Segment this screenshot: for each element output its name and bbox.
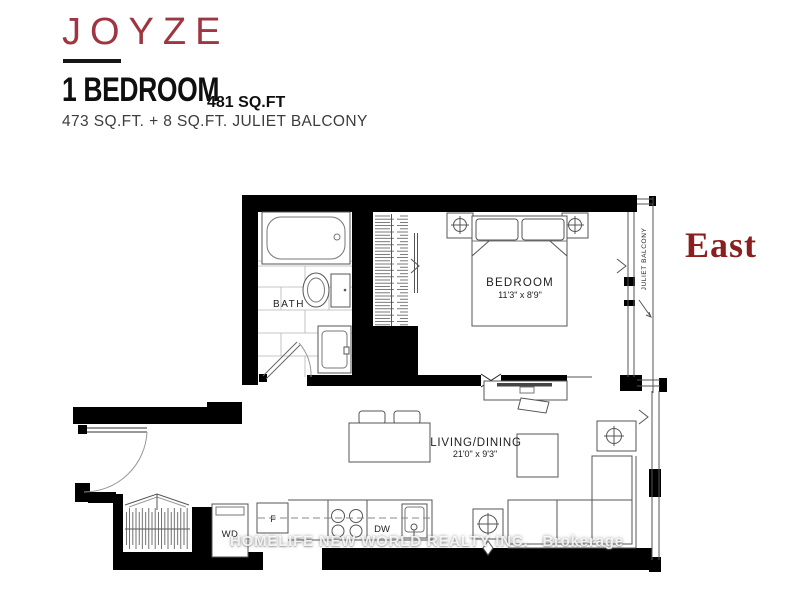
entry-door-hinge (78, 425, 87, 434)
tv-console (484, 381, 567, 413)
bedroom-room: BEDROOM 11'3" x 8'9" (447, 213, 588, 326)
wall-bath-west (242, 195, 258, 385)
window-mullion-bedroom-2 (624, 300, 635, 306)
living-dining-dimensions: 21'0" x 9'3" (453, 449, 497, 459)
bath-label: BATH (273, 299, 305, 310)
vanity-sink (318, 326, 351, 373)
dining-chair-left (359, 411, 385, 424)
bath-door-swing (263, 342, 311, 379)
watermark: HOMELIFE NEW WORLD REALTY INC.Brokerage (230, 533, 624, 550)
wall-west-jamb (75, 483, 90, 502)
wall-entry-north (73, 407, 230, 424)
entry-closet (125, 494, 190, 550)
bedroom-label: BEDROOM (486, 277, 554, 289)
wall-closet-block (373, 326, 418, 377)
bed (472, 216, 567, 326)
wall-balcony-bottom-block (620, 375, 642, 391)
watermark-realty: HOMELIFE NEW WORLD REALTY INC. (230, 533, 528, 550)
bedroom-closet (375, 214, 419, 326)
tv-icon (497, 383, 552, 387)
bathtub (262, 212, 350, 264)
bath-room: BATH (258, 212, 352, 379)
balcony-swing-arrow (639, 300, 651, 317)
coffee-table (517, 434, 558, 477)
wall-jamb-step (88, 492, 116, 503)
wall-bath-east (352, 195, 373, 378)
wall-entry-closet-right (192, 507, 212, 557)
window-chevron-bedroom (617, 259, 626, 273)
window-chevron-living (639, 410, 648, 424)
dining-table (349, 423, 430, 462)
toilet (303, 273, 350, 307)
entry-door-swing (84, 428, 147, 492)
floorplan-page: JOYZE 1 BEDROOM 481 SQ.FT 473 SQ.FT. + 8… (0, 0, 809, 600)
pillow-left (476, 219, 518, 240)
bedroom-dimensions: 11'3" x 8'9" (498, 290, 542, 300)
entry-closet-hangers (125, 505, 190, 550)
bath-door-hinge (259, 374, 267, 382)
living-dining-label: LIVING/DINING (430, 437, 522, 449)
watermark-suffix: Brokerage (542, 533, 623, 550)
floorplan-drawing: JULIET BALCONY (0, 0, 809, 600)
side-table (597, 421, 636, 451)
nightstand-left (447, 213, 473, 238)
wall-entry-step (207, 402, 242, 424)
fridge-label: F (270, 514, 276, 524)
wall-balcony-return-end (659, 378, 667, 392)
pillow-right (522, 219, 564, 240)
dining-chair-right (394, 411, 420, 424)
window-mullion-bedroom-1 (624, 277, 635, 286)
juliet-balcony-label: JULIET BALCONY (641, 228, 648, 291)
wall-top (242, 195, 637, 212)
